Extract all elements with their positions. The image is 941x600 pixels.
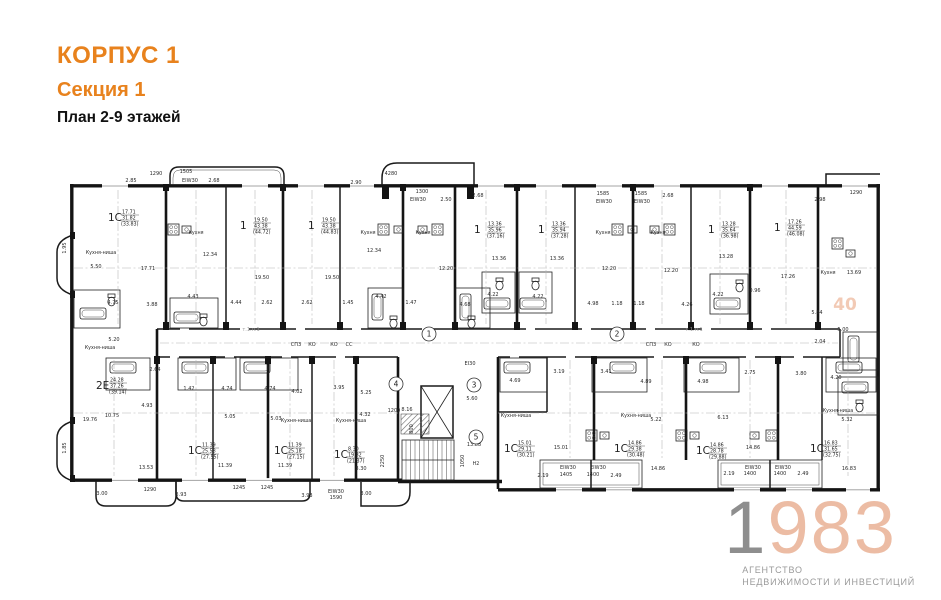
apartment-area: 35.64 bbox=[722, 228, 736, 234]
dimension-label: 11.39 bbox=[278, 463, 292, 469]
apartment-area: 44.59 bbox=[788, 226, 802, 232]
axis-marker-number: 2 bbox=[615, 330, 620, 339]
apartment-area: (37.16) bbox=[487, 234, 505, 240]
dimension-label: 12.20 bbox=[664, 268, 678, 274]
axis-marker-number: 4 bbox=[394, 380, 399, 389]
apartment-area: 1С bbox=[614, 443, 628, 455]
dimension-label: ЕІW30 bbox=[775, 465, 791, 471]
dimension-label: 1245 bbox=[233, 485, 246, 491]
apartment-area: (36.98) bbox=[721, 234, 739, 240]
axis-marker-number: 5 bbox=[474, 433, 479, 442]
dimension-label: 4.32 bbox=[359, 412, 370, 418]
dimension-label: 4.26 bbox=[681, 302, 692, 308]
apartment-area: (39.14) bbox=[109, 390, 127, 396]
dimension-label: 2.68 bbox=[472, 193, 483, 199]
dimension-label: 1300 bbox=[416, 189, 429, 195]
apartment-area: 1С bbox=[108, 212, 122, 224]
dimension-label: 4.22 bbox=[532, 294, 543, 300]
dimension-label: 1245 bbox=[261, 485, 274, 491]
apartment-label: 113.3635.94(37.28) bbox=[538, 222, 569, 240]
dimension-label: 2.68 bbox=[208, 178, 219, 184]
apartment-area: 1С bbox=[810, 443, 824, 455]
apartment-area: 1 bbox=[240, 220, 247, 232]
dimension-label: 2.49 bbox=[797, 471, 808, 477]
apartment-area: 43.38 bbox=[322, 224, 336, 230]
apartment-area: 1С bbox=[504, 443, 518, 455]
apartment-area: 28.78 bbox=[710, 449, 724, 455]
dimension-label: 13.36 bbox=[550, 256, 564, 262]
dimension-label: ЕІW30 bbox=[410, 197, 426, 203]
dimension-label: 1585 bbox=[635, 191, 648, 197]
dimension-label: 12.20 bbox=[602, 266, 616, 272]
dimension-label: 5.00 bbox=[837, 327, 848, 333]
dimension-label: 13.28 bbox=[719, 254, 733, 260]
apartment-label: 113.2835.64(36.98) bbox=[708, 222, 739, 240]
apartment-area: 24.28 bbox=[110, 378, 124, 384]
room-label: Кухня bbox=[820, 270, 835, 276]
logo-tagline-line2: НЕДВИЖИМОСТИ И ИНВЕСТИЦИЙ bbox=[742, 576, 915, 588]
apartment-area: 29.38 bbox=[628, 447, 642, 453]
stair-elevator-core bbox=[398, 357, 498, 489]
dimension-label: 19.50 bbox=[255, 275, 269, 281]
dimension-label: 1400 bbox=[744, 471, 757, 477]
dimension-label: 6.13 bbox=[717, 415, 728, 421]
dimension-label: т.1.п.1 bbox=[242, 327, 259, 333]
bathtub-icon bbox=[80, 308, 106, 319]
stove-icon bbox=[168, 224, 179, 235]
apartment-area: (37.28) bbox=[551, 234, 569, 240]
dimension-label: 4.74 bbox=[221, 386, 232, 392]
room-label: Кухня bbox=[650, 230, 665, 236]
apartment-area: (29.88) bbox=[709, 455, 727, 461]
apartment-area: 29.11 bbox=[518, 447, 532, 453]
apartment-label: 119.5043.38(44.83) bbox=[308, 218, 339, 236]
dimension-label: ЕІW30 bbox=[590, 465, 606, 471]
apartment-area: (32.75) bbox=[823, 453, 841, 459]
apartment-area: 43.38 bbox=[254, 224, 268, 230]
dimension-label: 1.42 bbox=[183, 386, 194, 392]
dimension-label: 13.69 bbox=[847, 270, 861, 276]
dimension-label: 2250 bbox=[380, 455, 386, 468]
dimension-label: СС bbox=[346, 342, 353, 348]
dimension-label: 2.19 bbox=[723, 471, 734, 477]
dimension-label: 12.34 bbox=[203, 252, 217, 258]
balconies bbox=[57, 163, 880, 506]
dimension-label: КО bbox=[308, 342, 316, 348]
dimension-label: 4.98 bbox=[697, 379, 708, 385]
apartment-label: 1С11.3925.58(27.55) bbox=[188, 443, 219, 461]
apartment-area: 19.50 bbox=[254, 218, 268, 224]
apartment-area: 1С bbox=[696, 445, 710, 457]
axis-marker-number: 1 bbox=[427, 330, 432, 339]
apartment-area: (30.21) bbox=[517, 453, 535, 459]
apartment-area: 13.36 bbox=[552, 222, 566, 228]
dimension-label: 8.16 bbox=[401, 407, 412, 413]
apartment-area: 35.94 bbox=[552, 228, 566, 234]
dimension-label: т.1.п.1 bbox=[685, 327, 702, 333]
apartment-area: 14.86 bbox=[628, 441, 642, 447]
apartment-area: 1 bbox=[774, 222, 781, 234]
room-label: Кухня bbox=[415, 230, 430, 236]
apartment-area: 35.96 bbox=[488, 228, 502, 234]
apartment-area: 1 bbox=[708, 224, 715, 236]
apartment-area: (44.83) bbox=[321, 230, 339, 236]
dimension-label: 3.00 bbox=[96, 491, 107, 497]
dimension-label: 5.50 bbox=[90, 264, 101, 270]
apartment-label: 1С8.3019.82(21.37) bbox=[334, 447, 365, 465]
dimension-label: 12.34 bbox=[367, 248, 381, 254]
dimension-label: 2.90 bbox=[350, 180, 361, 186]
dimension-label: 16.83 bbox=[842, 466, 856, 472]
apartment-label: 1С11.3925.18(27.15) bbox=[274, 443, 305, 461]
dimension-label: СПЗ bbox=[291, 342, 301, 348]
dimension-label: 11.39 bbox=[218, 463, 232, 469]
dimension-label: 10.75 bbox=[105, 413, 119, 419]
dimension-label: 1505 bbox=[180, 169, 193, 175]
dimension-label: 17.26 bbox=[781, 274, 795, 280]
room-label: Кухня-ниша bbox=[823, 408, 853, 414]
room-label: Н2 bbox=[473, 461, 480, 467]
dimension-label: 14.86 bbox=[651, 466, 665, 472]
dimension-label: 4.93 bbox=[141, 403, 152, 409]
dimension-label: 5.25 bbox=[360, 390, 371, 396]
dimension-label: 4.75 bbox=[107, 300, 118, 306]
dimension-label: 1400 bbox=[774, 471, 787, 477]
dimension-label: 5.05 bbox=[224, 414, 235, 420]
dimension-label: 1050 bbox=[460, 455, 466, 468]
apartment-area: 1 bbox=[538, 224, 545, 236]
dimension-label: 4.22 bbox=[487, 292, 498, 298]
room-label: Кухня-ниша bbox=[86, 250, 116, 256]
apartment-area: 25.18 bbox=[288, 449, 302, 455]
apartment-area: 13.36 bbox=[488, 222, 502, 228]
apartment-area: 1С bbox=[188, 445, 202, 457]
dimension-label: 2.50 bbox=[440, 197, 451, 203]
dimension-label: 5.32 bbox=[841, 417, 852, 423]
apartment-label: 1С15.0129.11(30.21) bbox=[504, 441, 535, 459]
apartment-area: 17.71 bbox=[122, 210, 136, 216]
apartment-area: (27.15) bbox=[287, 455, 305, 461]
dimension-label: 3.95 bbox=[333, 385, 344, 391]
dimension-label: ЕІW30 bbox=[182, 178, 198, 184]
logo-year: 1983 bbox=[724, 495, 915, 562]
dimension-label: 4.74 bbox=[264, 386, 275, 392]
dimension-label: 5.60 bbox=[466, 396, 477, 402]
elevator-lobby-hatch bbox=[401, 414, 429, 434]
dimension-label: КО bbox=[692, 342, 700, 348]
dimension-label: 4.02 bbox=[291, 389, 302, 395]
dimension-label: 1.95 bbox=[62, 242, 68, 253]
plan-title: План 2-9 этажей bbox=[57, 109, 181, 127]
dimension-label: 3.80 bbox=[795, 371, 806, 377]
dimension-label: 4.20 bbox=[830, 375, 841, 381]
dimension-label: 4.42 bbox=[375, 294, 386, 300]
apartment-area: 19.50 bbox=[322, 218, 336, 224]
apartment-area: 1С bbox=[334, 449, 348, 461]
dimension-label: 5.84 bbox=[811, 310, 822, 316]
apartment-area: 13.28 bbox=[722, 222, 736, 228]
dimension-label: 4.98 bbox=[587, 301, 598, 307]
apartment-area: 17.26 bbox=[788, 220, 802, 226]
dimension-label: СПЗ bbox=[646, 342, 656, 348]
dimension-label: ЕІW30 bbox=[745, 465, 761, 471]
apartment-area: (27.55) bbox=[201, 455, 219, 461]
apartment-area: 2Е bbox=[96, 380, 109, 392]
dimension-label: 1585 bbox=[597, 191, 610, 197]
dimension-label: 3.88 bbox=[146, 302, 157, 308]
apartment-area: 14.86 bbox=[710, 443, 724, 449]
apartment-label: 119.5043.38(44.72) bbox=[240, 218, 271, 236]
dimension-label: 17.71 bbox=[141, 266, 155, 272]
dimension-label: 4.44 bbox=[230, 300, 241, 306]
dimension-label: 3.41 bbox=[600, 369, 611, 375]
dimension-label: 1.85 bbox=[62, 442, 68, 453]
dimension-label: 1.45 bbox=[342, 300, 353, 306]
apartment-area: 16.83 bbox=[824, 441, 838, 447]
dimension-label: 2.49 bbox=[610, 473, 621, 479]
dimension-label: ЕІW30 bbox=[560, 465, 576, 471]
room-label: Кухня bbox=[360, 230, 375, 236]
apartment-area: 1С bbox=[274, 445, 288, 457]
apartment-area: 1 bbox=[474, 224, 481, 236]
apartment-area: 8.30 bbox=[348, 447, 359, 453]
dimension-label: 4.22 bbox=[712, 292, 723, 298]
dimension-label: 2.68 bbox=[662, 193, 673, 199]
dimension-label: 5.22 bbox=[650, 417, 661, 423]
dimension-label: 2.64 bbox=[149, 367, 160, 373]
dimension-label: 3.93 bbox=[175, 492, 186, 498]
dimension-label: 2.62 bbox=[301, 300, 312, 306]
watermark-40: 40 bbox=[833, 295, 857, 315]
dimension-label: 1.18 bbox=[633, 301, 644, 307]
apartment-area: (30.48) bbox=[627, 453, 645, 459]
dimension-label: 4.68 bbox=[459, 302, 470, 308]
apartment-area: 1 bbox=[308, 220, 315, 232]
building-title: КОРПУС 1 bbox=[57, 42, 181, 70]
apartment-area: 31.82 bbox=[122, 216, 136, 222]
dimension-label: 2.98 bbox=[814, 197, 825, 203]
apartment-area: (46.08) bbox=[787, 232, 805, 238]
dimension-label: 19.50 bbox=[325, 275, 339, 281]
dimension-label: 1.18 bbox=[611, 301, 622, 307]
dimension-label: 4.43 bbox=[187, 294, 198, 300]
dimension-label: 19.76 bbox=[83, 417, 97, 423]
dimension-label: 1290 bbox=[144, 487, 157, 493]
dimension-label: КО bbox=[664, 342, 672, 348]
logo-year-digit1: 1 bbox=[724, 486, 767, 569]
dimension-label: 1590 bbox=[330, 495, 343, 501]
apartment-label: 113.3635.96(37.16) bbox=[474, 222, 505, 240]
dimension-label: 1290 bbox=[150, 171, 163, 177]
apartment-area: 11.39 bbox=[202, 443, 216, 449]
apartment-area: 11.39 bbox=[288, 443, 302, 449]
dimension-label: 2.75 bbox=[744, 370, 755, 376]
room-label: Кухня-ниша bbox=[281, 418, 311, 424]
dimension-label: 1400 bbox=[587, 472, 600, 478]
dimension-label: ЕІW30 bbox=[596, 199, 612, 205]
agency-logo: 1983 АГЕНТСТВО НЕДВИЖИМОСТИ И ИНВЕСТИЦИЙ bbox=[724, 495, 915, 588]
dimension-label: 4280 bbox=[385, 171, 398, 177]
apartment-area: 25.58 bbox=[202, 449, 216, 455]
dimension-label: 15.01 bbox=[554, 445, 568, 451]
dimension-label: 13.53 bbox=[139, 465, 153, 471]
apartment-label: 1С14.8629.38(30.48) bbox=[614, 441, 645, 459]
dimension-label: 13.36 bbox=[492, 256, 506, 262]
apartment-label: 1С16.8331.65(32.75) bbox=[810, 441, 841, 459]
dimension-label: ЕІ30 bbox=[465, 361, 476, 367]
dimension-label: 0.96 bbox=[749, 288, 760, 294]
room-label: Кухня-ниша bbox=[336, 418, 366, 424]
dimension-label: 3.19 bbox=[553, 369, 564, 375]
apartment-area: (21.37) bbox=[347, 459, 365, 465]
axis-marker-number: 3 bbox=[472, 381, 477, 390]
dimension-label: КО bbox=[330, 342, 338, 348]
dimension-label: 12.20 bbox=[439, 266, 453, 272]
dimension-label: 1200 bbox=[388, 408, 401, 414]
dimension-label: 1290 bbox=[850, 190, 863, 196]
dimension-label: 2.85 bbox=[125, 178, 136, 184]
room-label: Кухня bbox=[188, 230, 203, 236]
section-title: Секция 1 bbox=[57, 79, 181, 102]
apartment-label: 1С17.7131.82(33.83) bbox=[108, 210, 139, 228]
dimension-label: 5.20 bbox=[108, 337, 119, 343]
logo-year-digits: 983 bbox=[767, 486, 896, 569]
apartment-label: 2Е24.2837.26(39.14) bbox=[96, 378, 127, 396]
page: КОРПУС 1 Секция 1 План 2-9 этажей bbox=[0, 0, 941, 600]
drawing-header: КОРПУС 1 Секция 1 План 2-9 этажей bbox=[57, 42, 181, 126]
dimension-label: 3.00 bbox=[360, 491, 371, 497]
dimension-label: ЕІW30 bbox=[634, 199, 650, 205]
apartment-area: 31.65 bbox=[824, 447, 838, 453]
room-label: Кухня-ниша bbox=[501, 413, 531, 419]
dimension-label: 1405 bbox=[560, 472, 573, 478]
room-label: Кухня-ниша bbox=[621, 413, 651, 419]
apartment-area: 19.82 bbox=[348, 453, 362, 459]
apartment-area: 15.01 bbox=[518, 441, 532, 447]
dimension-label: 4.89 bbox=[640, 379, 651, 385]
dimension-label: 3.93 bbox=[301, 493, 312, 499]
apartment-label: 1С14.8628.78(29.88) bbox=[696, 443, 727, 461]
apartment-area: (44.72) bbox=[253, 230, 271, 236]
room-label: Кухня-ниша bbox=[85, 345, 115, 351]
dimension-label: 800 bbox=[409, 424, 415, 434]
apartment-area: 37.26 bbox=[110, 384, 124, 390]
dimension-label: 2.62 bbox=[261, 300, 272, 306]
dimension-label: 14.86 bbox=[746, 445, 760, 451]
dimension-label: 2.04 bbox=[814, 339, 825, 345]
dimension-label: 4.69 bbox=[509, 378, 520, 384]
floor-plan-drawing: 40 2.8512901505ЕІW302.682.9042801300ЕІW3… bbox=[50, 148, 912, 528]
room-label: Кухня bbox=[595, 230, 610, 236]
dimension-label: 1.47 bbox=[405, 300, 416, 306]
dimension-label: 2.19 bbox=[537, 473, 548, 479]
apartment-label: 117.2644.59(46.08) bbox=[774, 220, 805, 238]
dimension-label: 8.30 bbox=[355, 466, 366, 472]
apartment-area: (33.83) bbox=[121, 222, 139, 228]
